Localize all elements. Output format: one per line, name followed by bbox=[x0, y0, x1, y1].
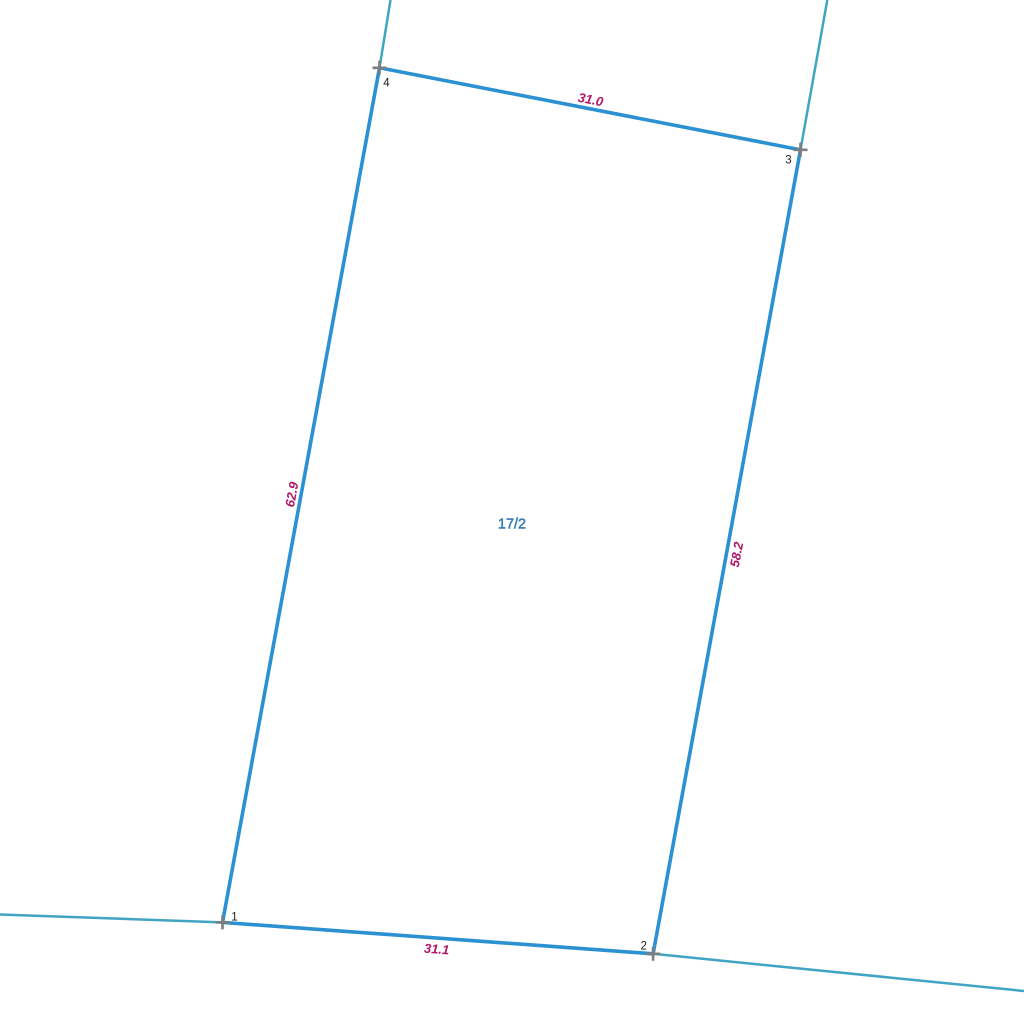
svg-text:17/2: 17/2 bbox=[498, 517, 526, 533]
svg-text:1: 1 bbox=[231, 911, 237, 923]
svg-text:4: 4 bbox=[383, 77, 390, 89]
svg-text:2: 2 bbox=[640, 941, 646, 953]
svg-text:3: 3 bbox=[785, 155, 791, 167]
svg-text:31.1: 31.1 bbox=[424, 941, 450, 958]
